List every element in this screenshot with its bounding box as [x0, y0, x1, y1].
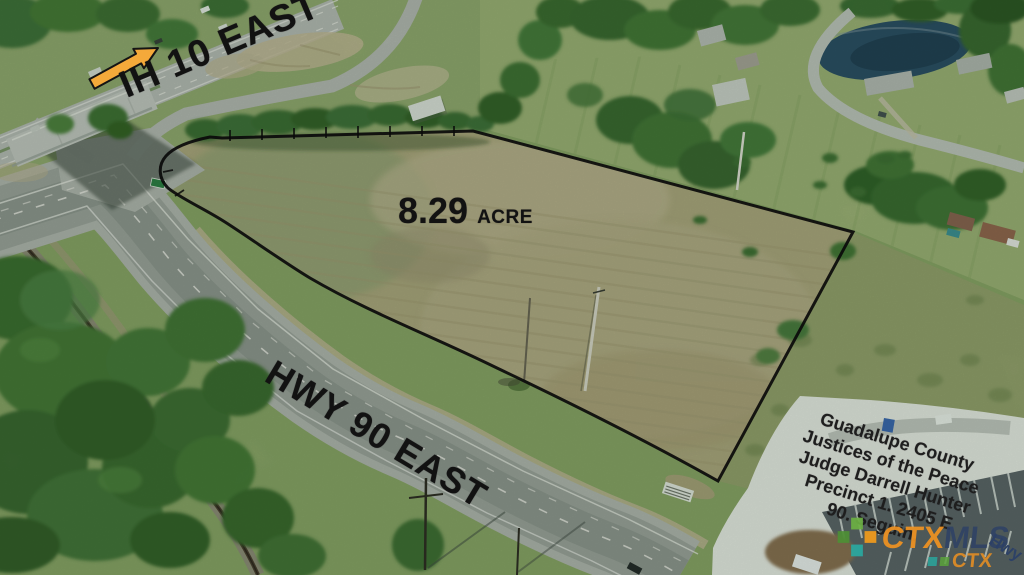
acreage-label: 8.29 ACRE [398, 190, 533, 232]
watermark-ctx-small: CTX [927, 550, 993, 573]
watermark-text: CTXMLS [880, 522, 1011, 553]
ctx-mls-logo-icon [836, 514, 878, 560]
ctx-mls-watermark: CTXMLS CTX [836, 514, 1009, 560]
teal-square-icon [928, 557, 938, 566]
acreage-value: 8.29 [398, 190, 468, 232]
green-square-icon [940, 557, 950, 566]
watermark-ctx-small-text: CTX [951, 550, 993, 573]
acreage-unit: ACRE [477, 207, 533, 229]
aerial-listing-photo: IH 10 EAST 8.29 ACRE HWY 90 EAST Guadalu… [0, 0, 1024, 575]
